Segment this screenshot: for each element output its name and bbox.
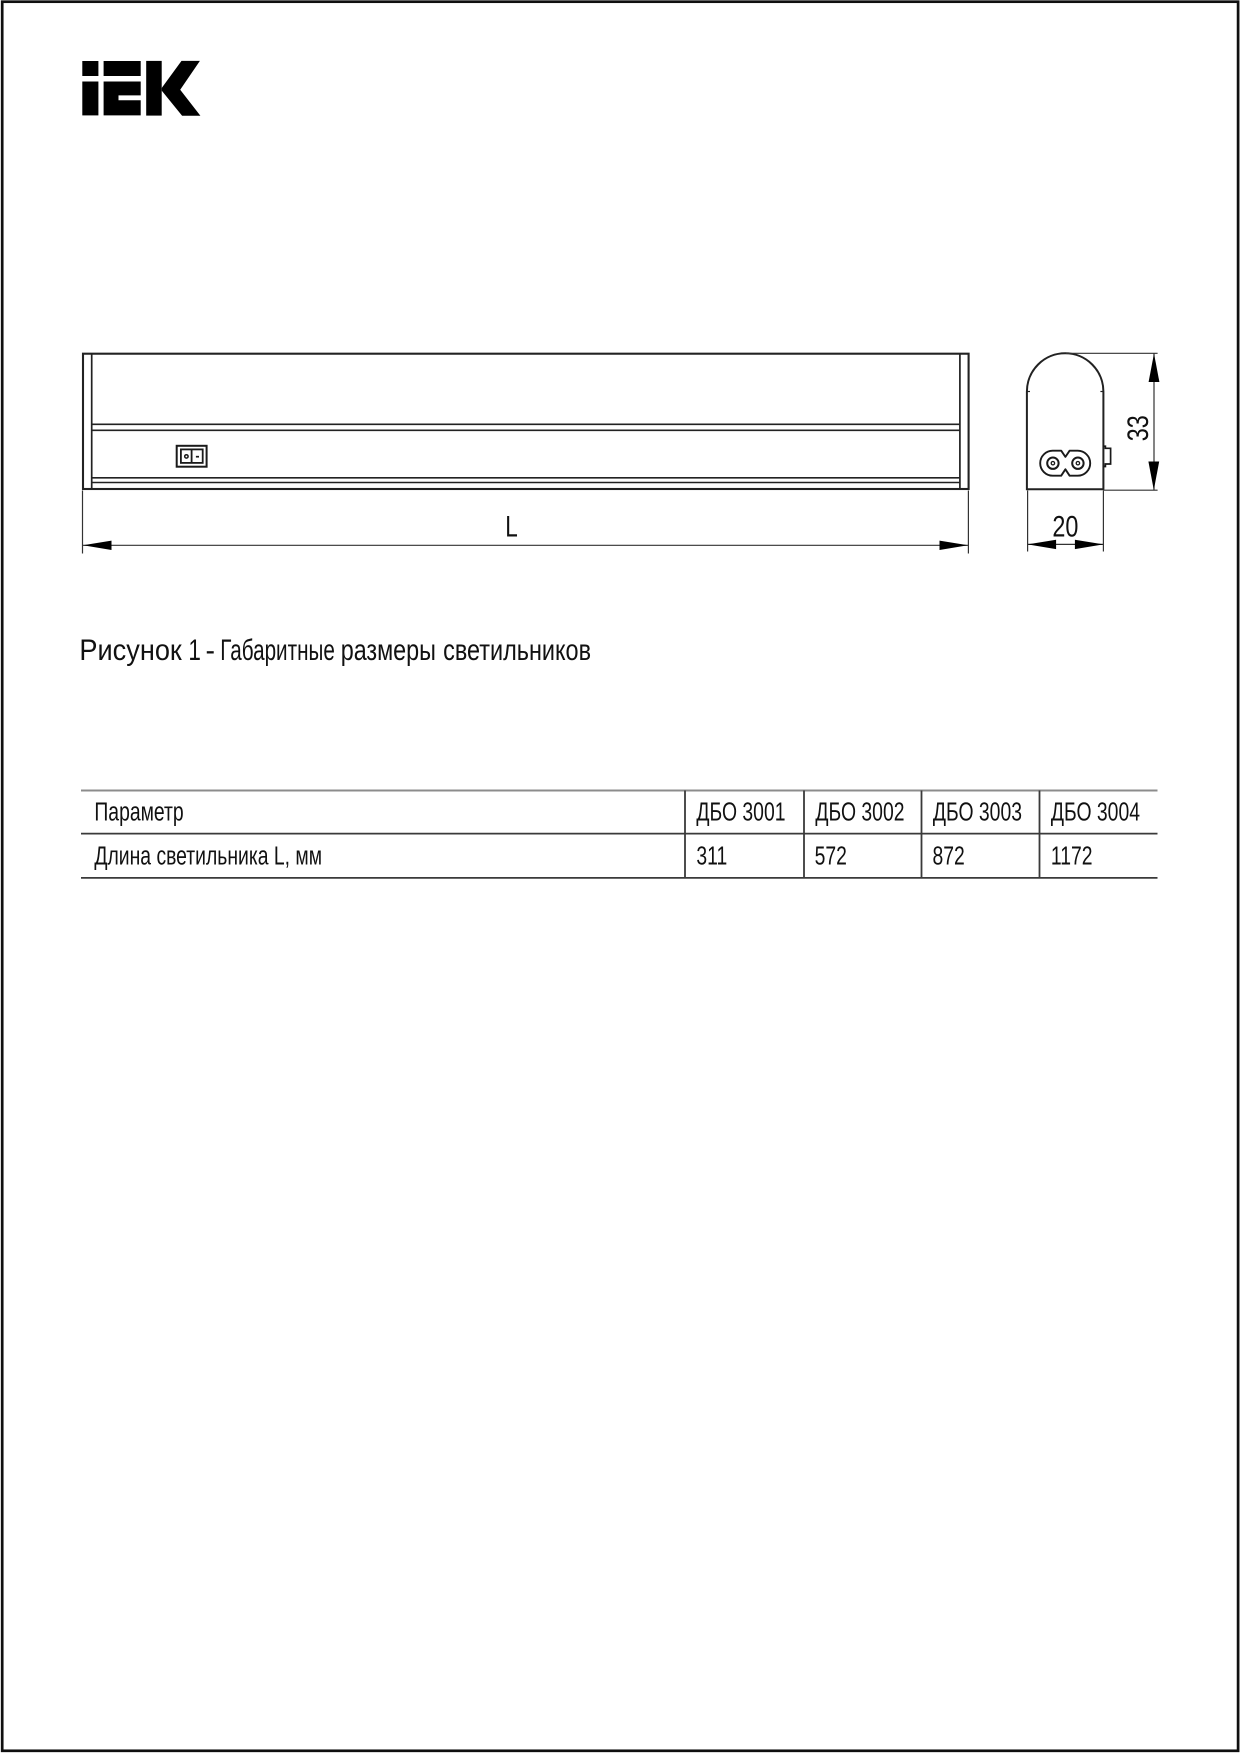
svg-text:размеры: размеры bbox=[341, 633, 436, 666]
svg-text:33: 33 bbox=[1121, 415, 1154, 441]
svg-text:ДБО 3004: ДБО 3004 bbox=[1051, 797, 1140, 826]
svg-text:20: 20 bbox=[1052, 510, 1078, 543]
svg-text:1172: 1172 bbox=[1051, 841, 1093, 870]
svg-text:ДБО 3002: ДБО 3002 bbox=[815, 797, 904, 826]
svg-text:ДБО 3003: ДБО 3003 bbox=[933, 797, 1022, 826]
svg-text:1: 1 bbox=[188, 633, 201, 667]
svg-text:ДБО 3001: ДБО 3001 bbox=[696, 797, 785, 826]
svg-text:872: 872 bbox=[933, 841, 965, 870]
svg-text:311: 311 bbox=[696, 841, 727, 870]
svg-text:Длина светильника L, мм: Длина светильника L, мм bbox=[94, 841, 322, 870]
svg-text:L: L bbox=[505, 509, 518, 543]
svg-text:Параметр: Параметр bbox=[94, 797, 183, 826]
svg-text:Габаритные: Габаритные bbox=[220, 635, 335, 668]
svg-text:Рисунок: Рисунок bbox=[79, 634, 182, 668]
svg-text:-: - bbox=[206, 635, 215, 668]
svg-text:светильников: светильников bbox=[443, 633, 591, 666]
svg-text:572: 572 bbox=[815, 841, 847, 870]
